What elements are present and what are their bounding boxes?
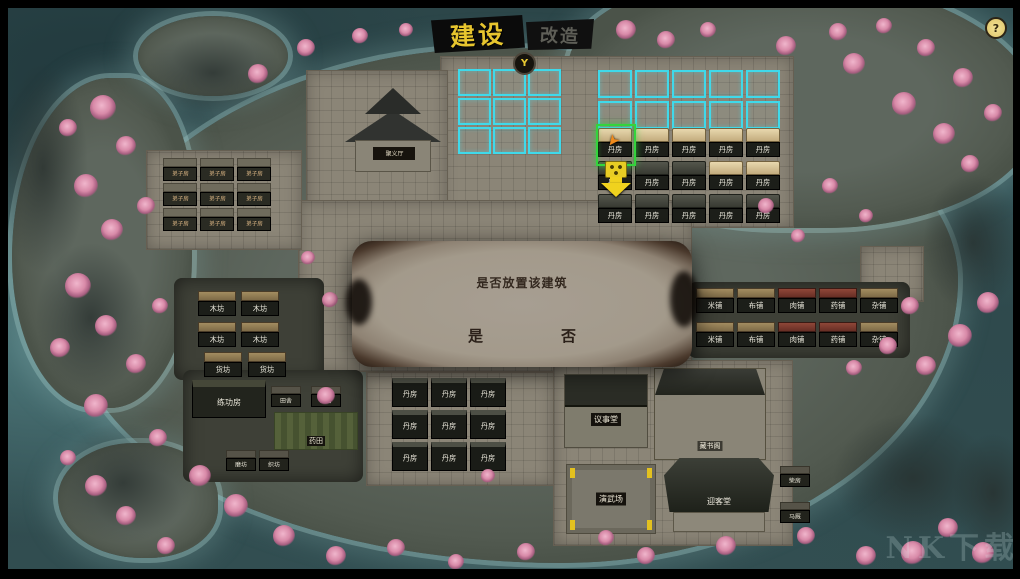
- building-tile[interactable]: 弟子房: [200, 158, 234, 181]
- building-tile[interactable]: 丹房: [635, 161, 669, 190]
- building-roof: [635, 128, 669, 142]
- building-tile[interactable]: 丹房: [709, 194, 743, 223]
- building-sign: 货坊: [260, 366, 274, 373]
- building-roof: [200, 208, 234, 217]
- building-sign: 弟子房: [209, 221, 226, 227]
- cherry-blossom-tree: [399, 23, 413, 37]
- shop-row-2: 米铺布铺肉铺药铺杂铺: [696, 322, 898, 347]
- building-roof: [696, 288, 734, 298]
- building-roof: [241, 322, 279, 332]
- cherry-blossom-tree: [90, 95, 116, 121]
- building-tile[interactable]: 丹房: [598, 194, 632, 223]
- confirm-dialog: 是否放置该建筑 是 否: [352, 241, 692, 367]
- building-sign: 丹房: [645, 146, 659, 153]
- cherry-blossom-tree: [74, 174, 98, 198]
- cherry-blossom-tree: [116, 506, 136, 526]
- empty-plot[interactable]: [672, 101, 706, 129]
- building-tile[interactable]: 丹房: [431, 410, 467, 439]
- building-tile[interactable]: 米铺: [696, 288, 734, 313]
- cherry-blossom-tree: [953, 68, 973, 88]
- building-sign: 丹房: [682, 212, 696, 219]
- building-roof: [163, 183, 197, 192]
- building-sign: 丹房: [756, 179, 770, 186]
- building-sign: 木坊: [210, 305, 224, 312]
- building-roof: [198, 291, 236, 301]
- empty-plot[interactable]: [528, 127, 561, 154]
- building-sign: 丹房: [682, 179, 696, 186]
- island-map: 丹房丹房丹房丹房丹房 丹房丹房丹房丹房丹房 丹房丹房丹房丹房丹房 ➤ 弟子房弟子…: [8, 8, 1013, 569]
- building-tile[interactable]: 弟子房: [200, 183, 234, 206]
- cherry-blossom-tree: [189, 465, 211, 487]
- cherry-blossom-tree: [352, 28, 368, 44]
- empty-plot-grid-right: [598, 70, 780, 129]
- building-roof: [778, 322, 816, 332]
- cherry-blossom-tree: [948, 324, 972, 348]
- cherry-blossom-tree: [224, 494, 248, 518]
- cherry-blossom-tree: [829, 23, 847, 41]
- building-tile[interactable]: 木坊: [198, 322, 236, 347]
- cherry-blossom-tree: [273, 525, 295, 547]
- building-roof: [696, 322, 734, 332]
- cherry-blossom-tree: [797, 527, 815, 545]
- building-roof: [200, 183, 234, 192]
- cherry-blossom-tree: [50, 338, 70, 358]
- building-sign: 丹房: [403, 390, 417, 400]
- cherry-blossom-tree: [149, 429, 167, 447]
- building-sign: 弟子房: [172, 221, 189, 227]
- building-tile[interactable]: 丹房: [635, 128, 669, 157]
- building-tile[interactable]: 杂铺: [860, 288, 898, 313]
- building-sign: 弟子房: [246, 171, 263, 177]
- building-roof: [198, 322, 236, 332]
- cherry-blossom-tree: [598, 530, 614, 546]
- building-sign: 弟子房: [209, 171, 226, 177]
- building-roof: [819, 288, 857, 298]
- building-roof: [163, 158, 197, 167]
- building-sign: 丹房: [481, 390, 495, 400]
- cherry-blossom-tree: [917, 39, 935, 57]
- building-roof: [237, 158, 271, 167]
- building-tile[interactable]: 丹房: [431, 442, 467, 471]
- building-sign: 货坊: [216, 366, 230, 373]
- empty-plot[interactable]: [746, 101, 780, 129]
- building-tile[interactable]: 布铺: [737, 322, 775, 347]
- dialog-message: 是否放置该建筑: [352, 274, 692, 291]
- building-tile[interactable]: 药铺: [819, 322, 857, 347]
- empty-plot[interactable]: [598, 70, 632, 98]
- building-tile[interactable]: 丹房: [392, 410, 428, 439]
- cherry-blossom-tree: [856, 546, 876, 566]
- building-tile[interactable]: 木坊: [241, 322, 279, 347]
- cherry-blossom-tree: [387, 539, 405, 557]
- empty-plot[interactable]: [458, 98, 491, 125]
- building-sign: 肉铺: [790, 302, 804, 309]
- building-roof: [226, 450, 256, 458]
- cherry-blossom-tree: [448, 554, 464, 569]
- building-sign: 肉铺: [790, 336, 804, 343]
- building-roof: [271, 386, 301, 394]
- pagoda-base: 聚义厅: [355, 140, 431, 172]
- building-roof: [248, 352, 286, 362]
- building-tile[interactable]: 米铺: [696, 322, 734, 347]
- building-tile[interactable]: 丹房: [392, 378, 428, 407]
- building-roof: [635, 161, 669, 175]
- building-roof: [200, 158, 234, 167]
- building-tile[interactable]: 丹房: [746, 161, 780, 190]
- building-tile[interactable]: 木坊: [198, 291, 236, 316]
- cherry-blossom-tree: [326, 546, 346, 566]
- building-tile[interactable]: 弟子房: [200, 208, 234, 231]
- building-tile[interactable]: 织坊: [259, 450, 289, 471]
- great-hall-roof: 迎客堂: [664, 458, 774, 512]
- building-tile[interactable]: 布铺: [737, 288, 775, 313]
- cherry-blossom-tree: [859, 209, 873, 223]
- building-row-3: 丹房丹房丹房丹房丹房: [598, 194, 780, 223]
- empty-plot[interactable]: [528, 69, 561, 96]
- building-sign: 丹房: [756, 146, 770, 153]
- empty-plot[interactable]: [458, 69, 491, 96]
- herb-field[interactable]: 药田: [274, 412, 358, 450]
- building-sign: 木坊: [253, 305, 267, 312]
- building-tile[interactable]: 药铺: [819, 288, 857, 313]
- building-sign: 丹房: [403, 422, 417, 432]
- building-sign: 织坊: [268, 460, 280, 469]
- building-tile[interactable]: 肉铺: [778, 288, 816, 313]
- building-tile[interactable]: 丹房: [672, 128, 706, 157]
- tab-modify[interactable]: 改造: [526, 19, 594, 50]
- pagoda-hall[interactable]: 聚义厅: [341, 88, 445, 176]
- building-tile[interactable]: 丹房: [635, 194, 669, 223]
- store-row: 货坊货坊: [204, 352, 286, 377]
- cherry-blossom-tree: [137, 197, 155, 215]
- council-plaque: 议事堂: [591, 413, 621, 426]
- cherry-blossom-tree: [791, 229, 805, 243]
- firewood-hut-wrap: 柴房: [780, 466, 810, 487]
- building-sign: 丹房: [481, 454, 495, 464]
- cherry-blossom-tree: [126, 354, 146, 374]
- placement-marker-icon: [605, 161, 627, 178]
- cherry-blossom-tree: [60, 450, 76, 466]
- stable-hut-wrap: 马厩: [780, 502, 810, 523]
- empty-plot[interactable]: [709, 101, 743, 129]
- empty-plot-grid-left: [458, 69, 561, 154]
- building-roof: [737, 288, 775, 298]
- pagoda-plaque: 聚义厅: [373, 147, 415, 160]
- cherry-blossom-tree: [317, 387, 335, 405]
- cherry-blossom-tree: [916, 356, 936, 376]
- cherry-blossom-tree: [822, 178, 838, 194]
- cherry-blossom-tree: [248, 64, 268, 84]
- cherry-blossom-tree: [637, 547, 655, 565]
- building-sign: 弟子房: [246, 196, 263, 202]
- site-watermark: NK下载: [886, 523, 1014, 567]
- building-roof: [672, 128, 706, 142]
- building-tile[interactable]: 木坊: [241, 291, 279, 316]
- cherry-blossom-tree: [843, 53, 865, 75]
- building-sign: 柴房: [789, 476, 801, 485]
- arena-ground[interactable]: 演武场: [566, 464, 656, 534]
- building-sign: 米铺: [708, 302, 722, 309]
- controller-y-button-icon: Y: [513, 52, 536, 75]
- library-sign: 藏书阁: [698, 441, 723, 451]
- building-sign: 布铺: [749, 302, 763, 309]
- cherry-blossom-tree: [776, 36, 796, 56]
- great-hall-sign: 迎客堂: [707, 496, 731, 507]
- building-tile[interactable]: 丹房: [709, 161, 743, 190]
- building-tile[interactable]: 丹房: [392, 442, 428, 471]
- cherry-blossom-tree: [152, 298, 168, 314]
- building-sign: 弟子房: [172, 171, 189, 177]
- building-sign: 丹房: [481, 422, 495, 432]
- building-sign: 弟子房: [246, 221, 263, 227]
- building-sign: 布铺: [749, 336, 763, 343]
- empty-plot[interactable]: [493, 98, 526, 125]
- training-hall[interactable]: 练功房: [192, 380, 266, 418]
- cherry-blossom-tree: [716, 536, 736, 556]
- cherry-blossom-tree: [657, 31, 675, 49]
- empty-plot[interactable]: [709, 70, 743, 98]
- building-tile[interactable]: 弟子房: [237, 183, 271, 206]
- cherry-blossom-tree: [876, 18, 892, 34]
- building-tile[interactable]: 弟子房: [163, 208, 197, 231]
- shop-row-1: 米铺布铺肉铺药铺杂铺: [696, 288, 898, 313]
- cherry-blossom-tree: [85, 475, 107, 497]
- quarters-grid: 丹房丹房丹房丹房丹房丹房丹房丹房丹房: [392, 378, 506, 471]
- cherry-blossom-tree: [933, 123, 955, 145]
- building-sign: 丹房: [442, 454, 456, 464]
- building-roof: [259, 450, 289, 458]
- building-tile[interactable]: 丹房: [470, 442, 506, 471]
- empty-plot[interactable]: [746, 70, 780, 98]
- pagoda-roof-upper: [365, 88, 421, 114]
- building-roof: [237, 208, 271, 217]
- cherry-blossom-tree: [157, 537, 175, 555]
- cherry-blossom-tree: [879, 337, 897, 355]
- cherry-blossom-tree: [481, 469, 495, 483]
- building-tile[interactable]: 丹房: [431, 378, 467, 407]
- building-roof: [672, 194, 706, 208]
- building-sign: 弟子房: [172, 196, 189, 202]
- building-roof: [737, 322, 775, 332]
- cherry-blossom-tree: [846, 360, 862, 376]
- building-tile[interactable]: 货坊: [204, 352, 242, 377]
- library-hall[interactable]: 藏书阁: [654, 368, 766, 460]
- building-roof: [778, 288, 816, 298]
- cherry-blossom-tree: [901, 297, 919, 315]
- empty-plot[interactable]: [528, 98, 561, 125]
- building-sign: 丹房: [645, 212, 659, 219]
- building-roof: [163, 208, 197, 217]
- building-sign: 丹房: [442, 390, 456, 400]
- building-sign: 田舍: [280, 396, 292, 405]
- cherry-blossom-tree: [59, 119, 77, 137]
- placement-down-arrow-icon: [601, 183, 631, 197]
- building-sign: 马厩: [789, 512, 801, 521]
- building-roof: [709, 128, 743, 142]
- cherry-blossom-tree: [517, 543, 535, 561]
- empty-plot[interactable]: [635, 70, 669, 98]
- building-tile[interactable]: 弟子房: [163, 158, 197, 181]
- stable-hut[interactable]: 马厩: [780, 502, 810, 523]
- building-roof: [709, 161, 743, 175]
- building-tile[interactable]: 丹房: [672, 161, 706, 190]
- building-tile[interactable]: 磨坊: [226, 450, 256, 471]
- empty-plot[interactable]: [458, 127, 491, 154]
- cherry-blossom-tree: [961, 155, 979, 173]
- building-tile[interactable]: 丹房: [470, 378, 506, 407]
- cherry-blossom-tree: [977, 292, 999, 314]
- building-roof: [860, 288, 898, 298]
- building-tile[interactable]: 丹房: [709, 128, 743, 157]
- building-sign: 丹房: [719, 146, 733, 153]
- building-sign: 弟子房: [209, 196, 226, 202]
- cherry-blossom-tree: [322, 292, 338, 308]
- building-roof: [672, 161, 706, 175]
- building-tile[interactable]: 肉铺: [778, 322, 816, 347]
- workshop-grid: 木坊木坊木坊木坊: [198, 291, 279, 347]
- arena-plaque: 演武场: [596, 493, 626, 506]
- building-tile[interactable]: 货坊: [248, 352, 286, 377]
- cherry-blossom-tree: [297, 39, 315, 57]
- building-sign: 药铺: [831, 336, 845, 343]
- game-screen: 丹房丹房丹房丹房丹房 丹房丹房丹房丹房丹房 丹房丹房丹房丹房丹房 ➤ 弟子房弟子…: [0, 0, 1020, 579]
- building-sign: 木坊: [253, 336, 267, 343]
- empty-plot[interactable]: [635, 101, 669, 129]
- building-tile[interactable]: 田舍: [271, 386, 301, 407]
- tab-build[interactable]: 建设: [431, 15, 525, 53]
- cherry-blossom-tree: [301, 251, 315, 265]
- cherry-blossom-tree: [95, 315, 117, 337]
- building-tile[interactable]: 弟子房: [163, 183, 197, 206]
- firewood-hut[interactable]: 柴房: [780, 466, 810, 487]
- cherry-blossom-tree: [758, 198, 774, 214]
- building-roof: [237, 183, 271, 192]
- building-roof: [709, 194, 743, 208]
- empty-plot[interactable]: [493, 127, 526, 154]
- empty-plot[interactable]: [672, 70, 706, 98]
- cherry-blossom-tree: [84, 394, 108, 418]
- cherry-blossom-tree: [616, 20, 636, 40]
- library-roof: [655, 369, 765, 395]
- building-roof: [746, 128, 780, 142]
- pagoda-roof-lower: [345, 110, 441, 142]
- cherry-blossom-tree: [65, 273, 91, 299]
- building-sign: 丹房: [645, 179, 659, 186]
- council-roof: [565, 375, 647, 407]
- building-sign: 丹房: [608, 212, 622, 219]
- no-button[interactable]: 否: [555, 323, 582, 348]
- council-hall[interactable]: 议事堂: [564, 374, 648, 448]
- building-sign: 丹房: [403, 454, 417, 464]
- building-roof: [819, 322, 857, 332]
- building-sign: 丹房: [442, 422, 456, 432]
- cherry-blossom-tree: [116, 136, 136, 156]
- building-sign: 米铺: [708, 336, 722, 343]
- cherry-blossom-tree: [984, 104, 1002, 122]
- building-sign: 杂铺: [872, 302, 886, 309]
- building-tile[interactable]: 弟子房: [237, 208, 271, 231]
- building-roof: [746, 161, 780, 175]
- mill-row: 磨坊织坊: [226, 450, 289, 471]
- cherry-blossom-tree: [892, 92, 916, 116]
- building-sign: 丹房: [719, 212, 733, 219]
- building-roof: [860, 322, 898, 332]
- building-roof: [241, 291, 279, 301]
- building-sign: 木坊: [210, 336, 224, 343]
- left-compound-grid: 弟子房弟子房弟子房弟子房弟子房弟子房弟子房弟子房弟子房: [163, 158, 271, 231]
- building-tile[interactable]: 丹房: [746, 128, 780, 157]
- building-tile[interactable]: 丹房: [672, 194, 706, 223]
- building-tile[interactable]: 弟子房: [237, 158, 271, 181]
- building-tile[interactable]: 丹房: [470, 410, 506, 439]
- building-sign: 丹房: [719, 179, 733, 186]
- building-roof: [635, 194, 669, 208]
- yes-button[interactable]: 是: [462, 323, 489, 348]
- building-sign: 药铺: [831, 302, 845, 309]
- cherry-blossom-tree: [101, 219, 123, 241]
- building-sign: 磨坊: [235, 460, 247, 469]
- building-sign: 丹房: [682, 146, 696, 153]
- field-sign: 药田: [307, 436, 325, 446]
- building-roof: [204, 352, 242, 362]
- help-icon[interactable]: ?: [985, 17, 1007, 39]
- cherry-blossom-tree: [700, 22, 716, 38]
- great-hall[interactable]: 迎客堂: [664, 458, 774, 538]
- great-hall-base: [673, 512, 765, 532]
